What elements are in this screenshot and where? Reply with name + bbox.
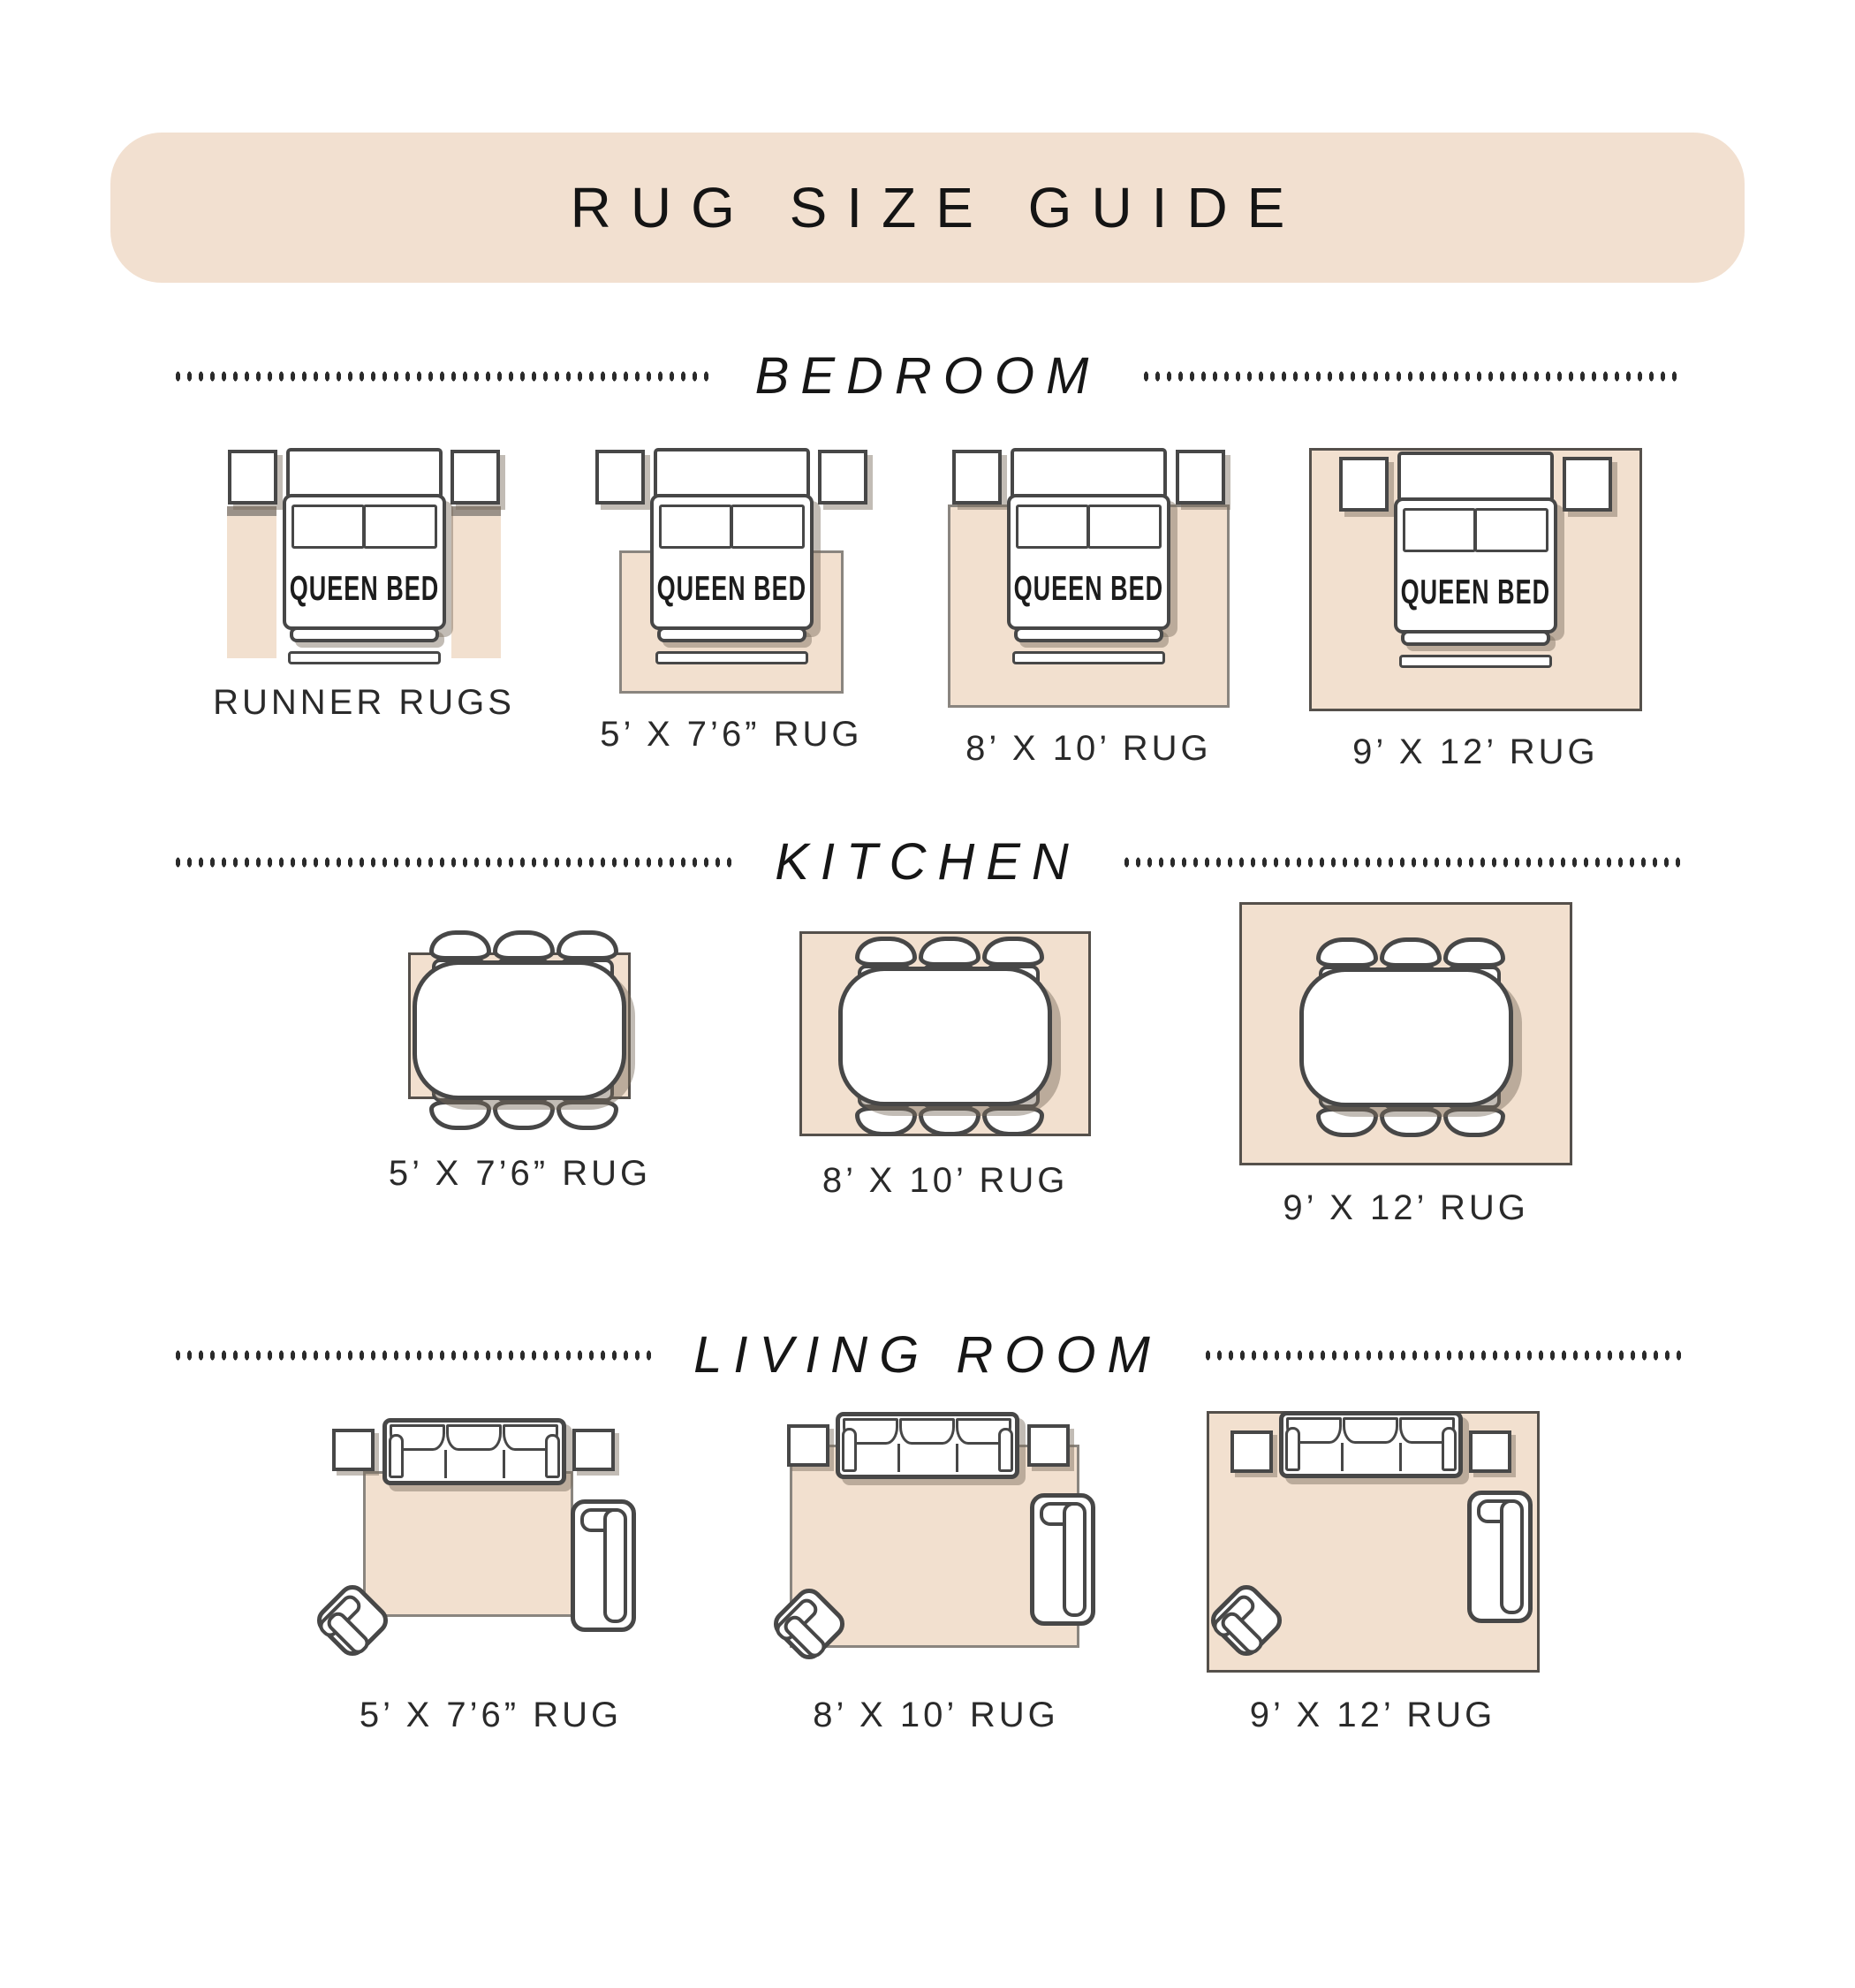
sofa-arm xyxy=(545,1434,560,1478)
figure-label: 9’ X 12’ RUG xyxy=(1283,1188,1528,1228)
sofa-back-cushion xyxy=(899,1418,955,1445)
sofa-seat-divider xyxy=(1341,1443,1344,1471)
figure-bedroom-5x76: QUEEN BED 5’ X 7’6” RUG xyxy=(594,448,868,755)
sofa-arm xyxy=(1442,1427,1457,1471)
figure-label: 9’ X 12’ RUG xyxy=(1250,1696,1495,1735)
lounge-chair-icon xyxy=(1467,1491,1533,1623)
kitchen-8x10-diagram xyxy=(799,931,1091,1140)
dining-table-icon xyxy=(838,967,1052,1106)
figure-living-9x12: 9’ X 12’ RUG xyxy=(1207,1409,1540,1735)
living-5x76-diagram xyxy=(316,1409,666,1674)
bedroom-8x10-diagram: QUEEN BED xyxy=(948,448,1230,708)
section-title-living-room: LIVING ROOM xyxy=(693,1325,1162,1385)
sofa-seat-divider xyxy=(503,1450,505,1478)
side-table-right-icon xyxy=(572,1429,615,1471)
sofa-arm xyxy=(998,1428,1013,1472)
queen-bed-label: QUEEN BED xyxy=(1011,569,1167,609)
section-title-kitchen: KITCHEN xyxy=(775,832,1080,892)
bed-mattress: QUEEN BED xyxy=(650,494,814,630)
queen-bed-label: QUEEN BED xyxy=(286,569,443,609)
sofa-back-cushion xyxy=(446,1424,502,1451)
figure-label: 8’ X 10’ RUG xyxy=(965,729,1211,769)
bed-mattress: QUEEN BED xyxy=(1007,494,1170,630)
bed-footboard xyxy=(1401,630,1550,646)
side-table-left-icon xyxy=(787,1424,829,1467)
dining-table-icon xyxy=(1299,967,1513,1107)
kitchen-9x12-diagram xyxy=(1239,902,1572,1167)
living-9x12-diagram xyxy=(1207,1409,1540,1674)
side-table-right-icon xyxy=(1469,1430,1511,1473)
bedroom-9x12-diagram: QUEEN BED xyxy=(1309,448,1642,711)
bed-headboard xyxy=(1397,451,1554,503)
queen-bed-icon: QUEEN BED xyxy=(1394,451,1557,662)
living-room-figures-row: 5’ X 7’6” RUG 8’ X 10’ RUG xyxy=(0,1409,1855,1735)
sofa-seat-divider xyxy=(956,1444,958,1472)
queen-bed-icon: QUEEN BED xyxy=(650,448,814,658)
area-rug xyxy=(363,1471,573,1617)
bed-footboard xyxy=(1014,626,1163,642)
lounge-chair-icon xyxy=(571,1499,636,1632)
nightstand-left-icon xyxy=(228,450,277,505)
side-table-left-icon xyxy=(1230,1430,1273,1473)
figure-label: 5’ X 7’6” RUG xyxy=(600,715,862,755)
dotted-divider xyxy=(172,1349,653,1362)
figure-label: 5’ X 7’6” RUG xyxy=(389,1154,651,1194)
kitchen-5x76-diagram xyxy=(408,926,631,1133)
bed-mattress: QUEEN BED xyxy=(1394,497,1557,634)
dining-table-icon xyxy=(413,960,626,1100)
living-8x10-diagram xyxy=(776,1409,1096,1674)
sofa-icon xyxy=(1279,1411,1463,1478)
figure-bedroom-8x10: QUEEN BED 8’ X 10’ RUG xyxy=(948,448,1230,769)
figure-living-5x76: 5’ X 7’6” RUG xyxy=(316,1409,666,1735)
section-header-living-room: LIVING ROOM xyxy=(172,1325,1683,1385)
figure-label: 8’ X 10’ RUG xyxy=(813,1696,1058,1735)
figure-bedroom-9x12: QUEEN BED 9’ X 12’ RUG xyxy=(1309,448,1642,772)
nightstand-right-icon xyxy=(450,450,500,505)
side-table-right-icon xyxy=(1027,1424,1070,1467)
rug-size-guide-page: { "title": "RUG SIZE GUIDE", "bed_label"… xyxy=(0,133,1855,1988)
sofa-seat-divider xyxy=(1399,1443,1402,1471)
bedroom-5x76-diagram: QUEEN BED xyxy=(594,448,868,694)
lounge-chair-icon xyxy=(1030,1493,1095,1626)
bed-headboard xyxy=(654,448,810,499)
sofa-icon xyxy=(382,1418,566,1485)
queen-bed-icon: QUEEN BED xyxy=(283,448,446,658)
nightstand-left-icon xyxy=(1339,457,1389,512)
section-header-bedroom: BEDROOM xyxy=(172,346,1683,406)
bed-footboard xyxy=(657,626,806,642)
sofa-icon xyxy=(836,1412,1019,1479)
dotted-divider xyxy=(172,370,715,383)
runner-rug-left xyxy=(227,506,276,658)
nightstand-right-icon xyxy=(818,450,867,505)
sofa-arm xyxy=(1285,1427,1300,1471)
queen-bed-label: QUEEN BED xyxy=(1397,573,1554,612)
queen-bed-icon: QUEEN BED xyxy=(1007,448,1170,658)
section-title-bedroom: BEDROOM xyxy=(755,346,1101,406)
page-title: RUG SIZE GUIDE xyxy=(551,175,1305,240)
bed-headboard xyxy=(1011,448,1167,499)
bed-footboard xyxy=(290,626,439,642)
figure-label: 9’ X 12’ RUG xyxy=(1352,732,1598,772)
dotted-divider xyxy=(1121,856,1683,869)
title-banner: RUG SIZE GUIDE xyxy=(110,133,1745,283)
dotted-divider xyxy=(1140,370,1683,383)
nightstand-left-icon xyxy=(952,450,1002,505)
figure-kitchen-8x10: 8’ X 10’ RUG xyxy=(799,931,1091,1201)
sofa-seat-divider xyxy=(897,1444,900,1472)
sofa-arm xyxy=(389,1434,404,1478)
figure-bedroom-runner: QUEEN BED RUNNER RUGS xyxy=(213,448,515,723)
section-header-kitchen: KITCHEN xyxy=(172,832,1683,892)
bedroom-figures-row: QUEEN BED RUNNER RUGS QUEEN BED 5’ X 7’6… xyxy=(0,448,1855,772)
side-table-left-icon xyxy=(332,1429,375,1471)
sofa-back-cushion xyxy=(1343,1417,1398,1444)
sofa-arm xyxy=(842,1428,857,1472)
dotted-divider xyxy=(1202,1349,1683,1362)
runner-rug-right xyxy=(451,506,501,658)
figure-label: 5’ X 7’6” RUG xyxy=(360,1696,622,1735)
queen-bed-label: QUEEN BED xyxy=(654,569,810,609)
figure-label: RUNNER RUGS xyxy=(213,683,515,723)
dotted-divider xyxy=(172,856,734,869)
figure-kitchen-9x12: 9’ X 12’ RUG xyxy=(1239,902,1572,1228)
bedroom-runner-diagram: QUEEN BED xyxy=(227,448,501,662)
kitchen-figures-row: 5’ X 7’6” RUG 8’ X 10’ RUG 9’ X 12’ RUG xyxy=(0,902,1855,1228)
figure-label: 8’ X 10’ RUG xyxy=(822,1161,1068,1201)
nightstand-left-icon xyxy=(595,450,645,505)
bed-headboard xyxy=(286,448,443,499)
nightstand-right-icon xyxy=(1563,457,1612,512)
figure-living-8x10: 8’ X 10’ RUG xyxy=(776,1409,1096,1735)
bed-mattress: QUEEN BED xyxy=(283,494,446,630)
sofa-seat-divider xyxy=(444,1450,447,1478)
figure-kitchen-5x76: 5’ X 7’6” RUG xyxy=(389,926,651,1194)
nightstand-right-icon xyxy=(1176,450,1225,505)
